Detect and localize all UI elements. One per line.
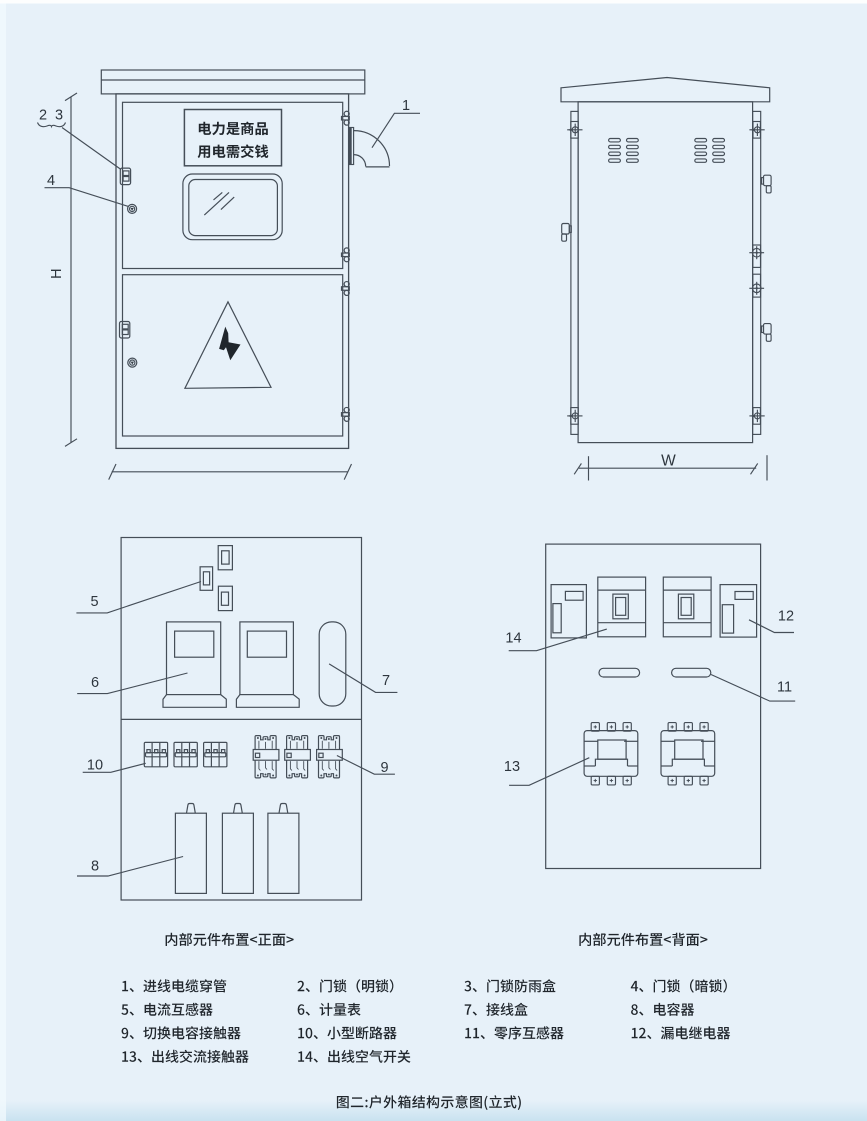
svg-text:W: W: [661, 453, 676, 470]
svg-text:6: 6: [91, 675, 99, 691]
svg-text:11: 11: [777, 680, 792, 696]
svg-text:5: 5: [91, 594, 99, 610]
svg-text:13: 13: [504, 759, 520, 775]
svg-text:H: H: [49, 268, 65, 278]
svg-text:7: 7: [382, 673, 390, 689]
svg-text:4: 4: [47, 173, 55, 189]
svg-text:3: 3: [55, 108, 63, 124]
svg-text:10: 10: [87, 758, 103, 774]
svg-text:1: 1: [402, 98, 410, 114]
svg-text:2: 2: [39, 108, 47, 124]
svg-text:14: 14: [505, 631, 521, 647]
svg-text:8: 8: [91, 859, 99, 875]
svg-text:9: 9: [380, 760, 388, 776]
svg-text:12: 12: [778, 609, 794, 625]
